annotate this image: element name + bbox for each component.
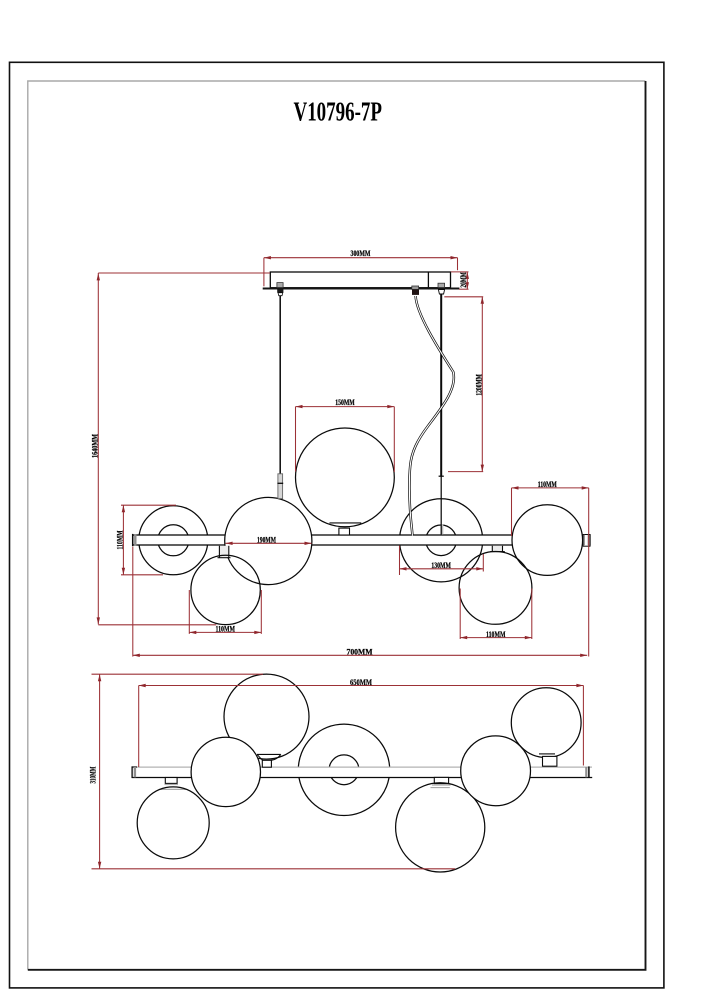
svg-text:110MM: 110MM — [538, 480, 557, 489]
svg-text:110MM: 110MM — [486, 630, 506, 639]
svg-text:310MM: 310MM — [89, 766, 98, 783]
svg-text:110MM: 110MM — [216, 625, 236, 634]
svg-text:110MM: 110MM — [116, 530, 125, 549]
svg-text:20MM: 20MM — [459, 272, 468, 288]
svg-text:V10796-7P: V10796-7P — [294, 95, 383, 126]
svg-text:130MM: 130MM — [431, 561, 451, 570]
svg-text:300MM: 300MM — [351, 249, 371, 258]
svg-text:1640MM: 1640MM — [90, 434, 99, 458]
svg-text:190MM: 190MM — [257, 535, 276, 544]
svg-text:1200MM: 1200MM — [474, 374, 483, 396]
svg-text:150MM: 150MM — [335, 398, 355, 407]
svg-text:700MM: 700MM — [347, 648, 373, 657]
svg-text:650MM: 650MM — [350, 678, 372, 687]
